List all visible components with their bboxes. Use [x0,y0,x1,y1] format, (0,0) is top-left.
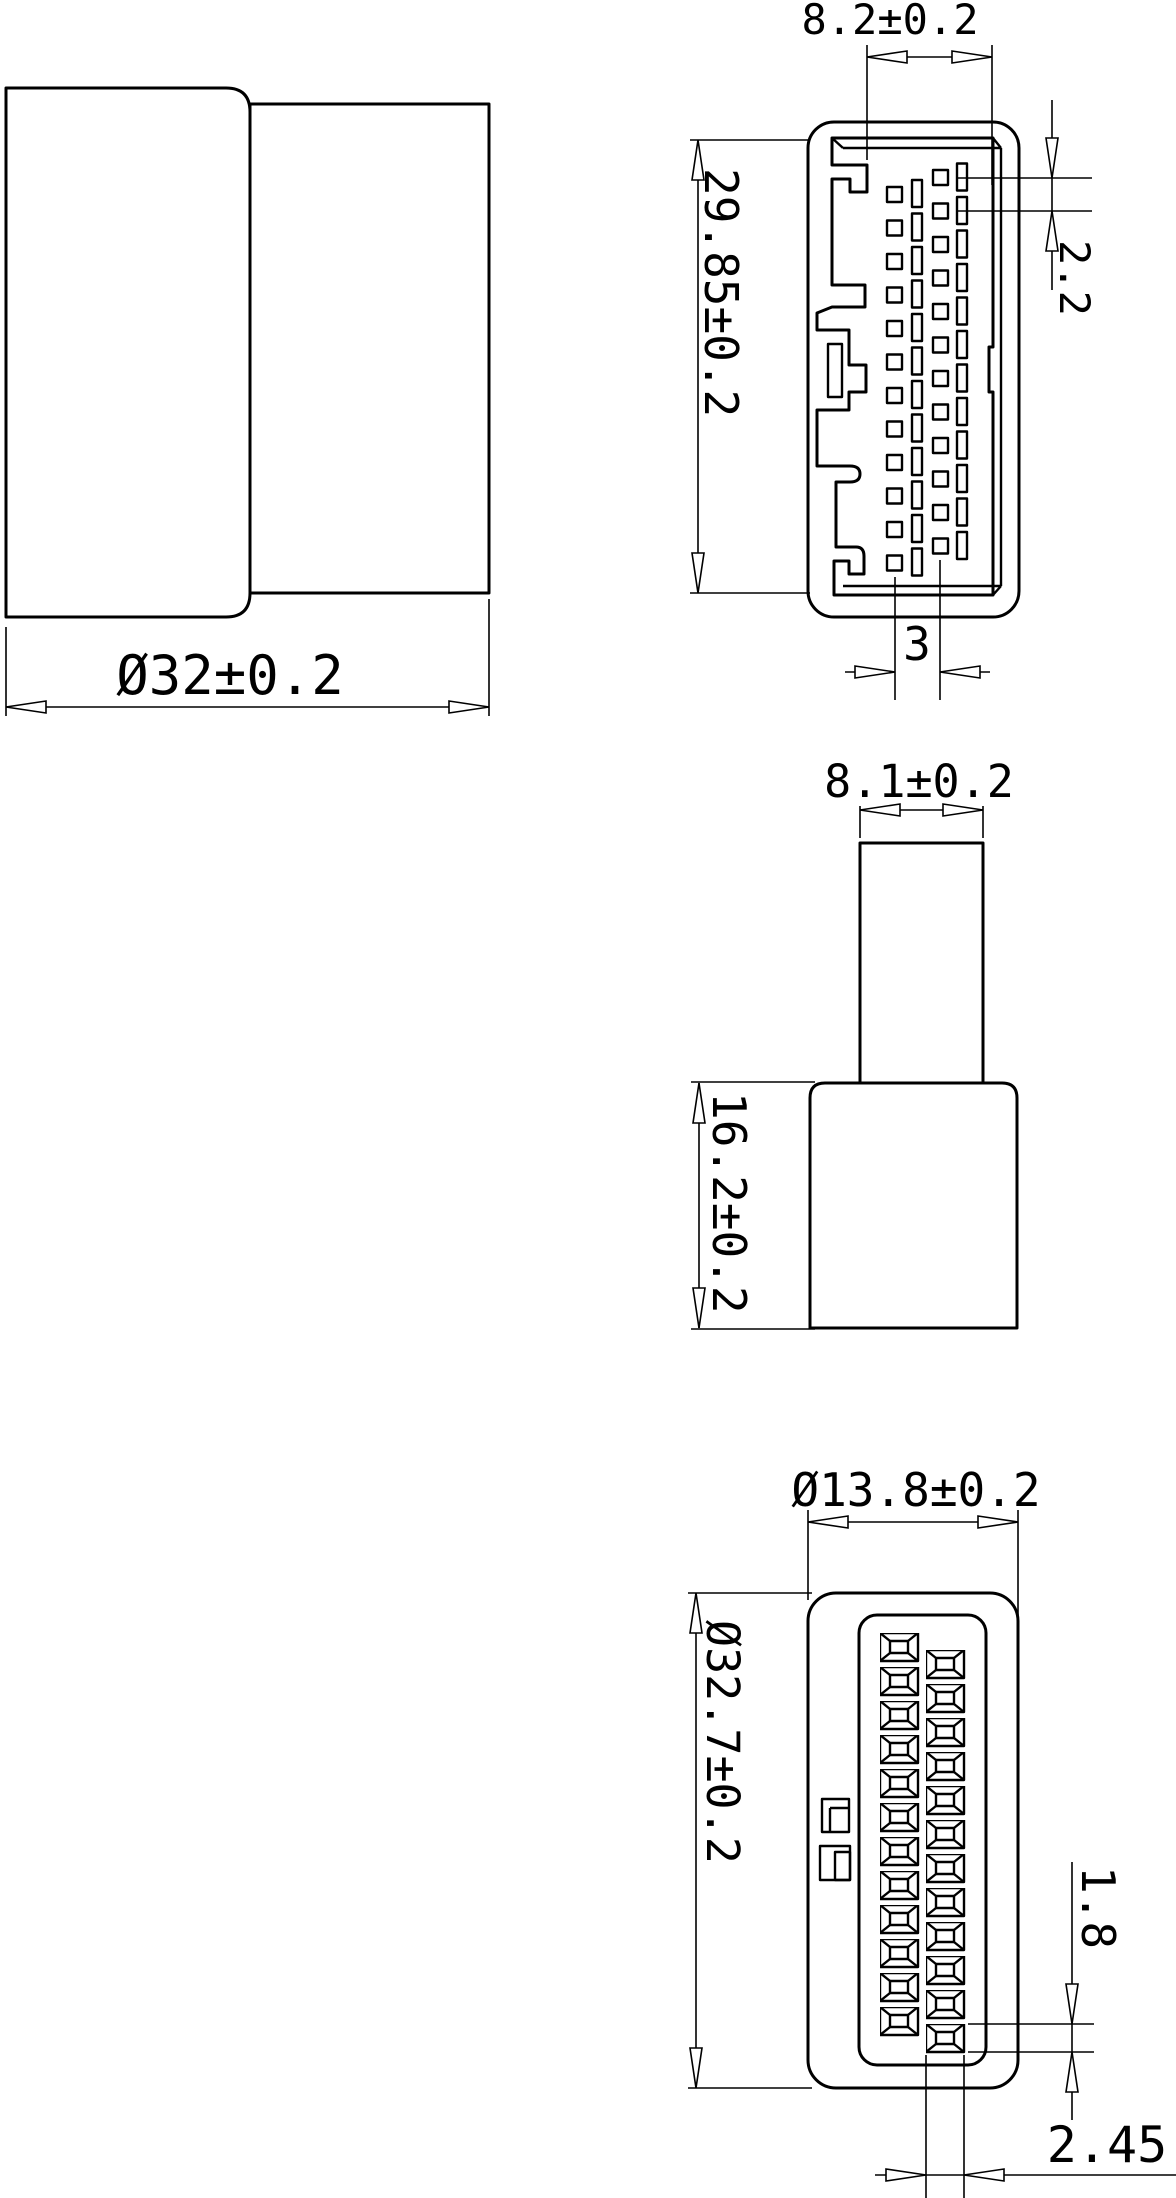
dim-front-height-label: 29.85±0.2 [694,168,748,417]
dim-overall-width-label: Ø32±0.2 [116,644,344,707]
technical-drawing-canvas: Ø32±0.2 8.2±0.2 [0,0,1176,2198]
dim-terminal-width-label: 2.45 [1047,2116,1167,2174]
dim-rear-width-label: Ø13.8±0.2 [791,1463,1040,1517]
dim-column-spacing-label: 3 [903,617,931,671]
dim-row-pitch-label: 2.2 [1050,240,1099,316]
drawing-sheet: Ø32±0.2 8.2±0.2 [0,0,1176,2198]
dim-stem-width-label: 8.1±0.2 [824,755,1014,808]
dim-rear-height-label: Ø32.7±0.2 [696,1620,749,1864]
sheet-background [0,0,1176,2198]
dim-terminal-height-label: 1.8 [1071,1866,1125,1949]
dim-slot-width-label: 8.2±0.2 [801,0,978,44]
dim-body-height-label: 16.2±0.2 [702,1092,756,1314]
